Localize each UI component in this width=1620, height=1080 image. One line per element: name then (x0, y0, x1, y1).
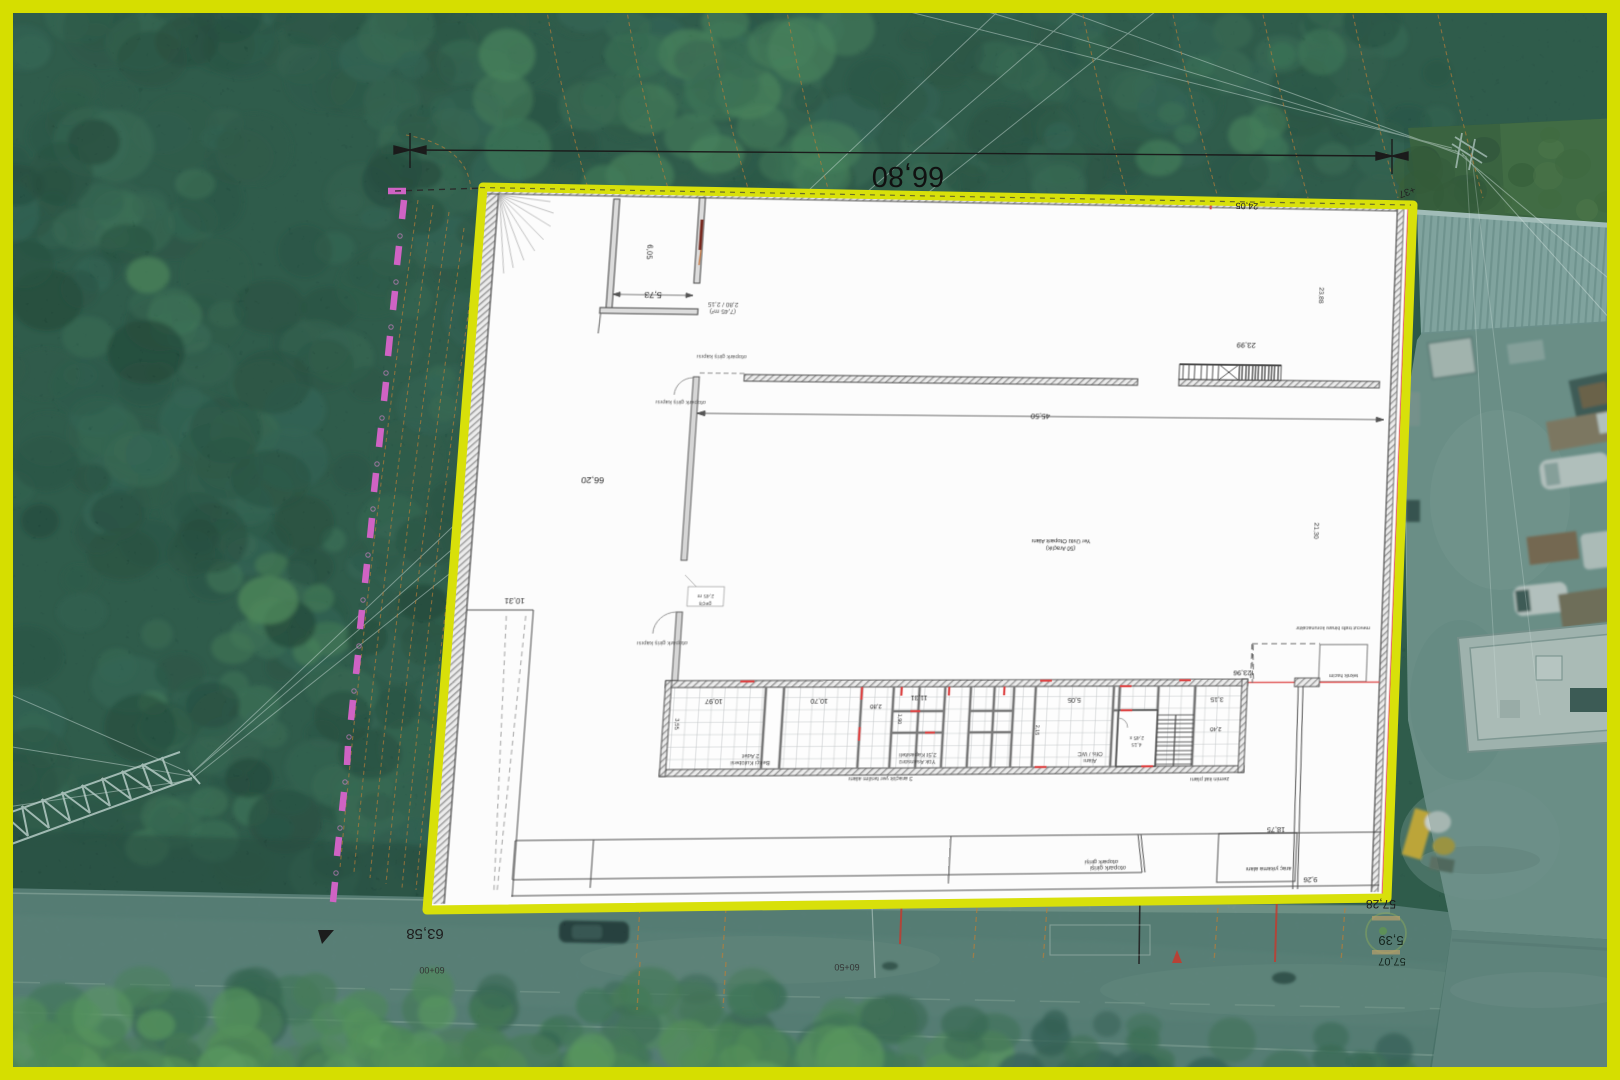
svg-text:60+00: 60+00 (419, 965, 444, 975)
svg-text:63,58: 63,58 (406, 925, 444, 942)
svg-text:57,07: 57,07 (1378, 955, 1406, 967)
svg-text:57,28: 57,28 (1366, 897, 1396, 911)
svg-text:+37: +37 (1397, 183, 1417, 199)
svg-text:24,05: 24,05 (1236, 201, 1259, 211)
svg-text:60+50: 60+50 (834, 962, 859, 972)
svg-text:66,80: 66,80 (872, 160, 945, 192)
svg-text:5,39: 5,39 (1378, 933, 1403, 948)
